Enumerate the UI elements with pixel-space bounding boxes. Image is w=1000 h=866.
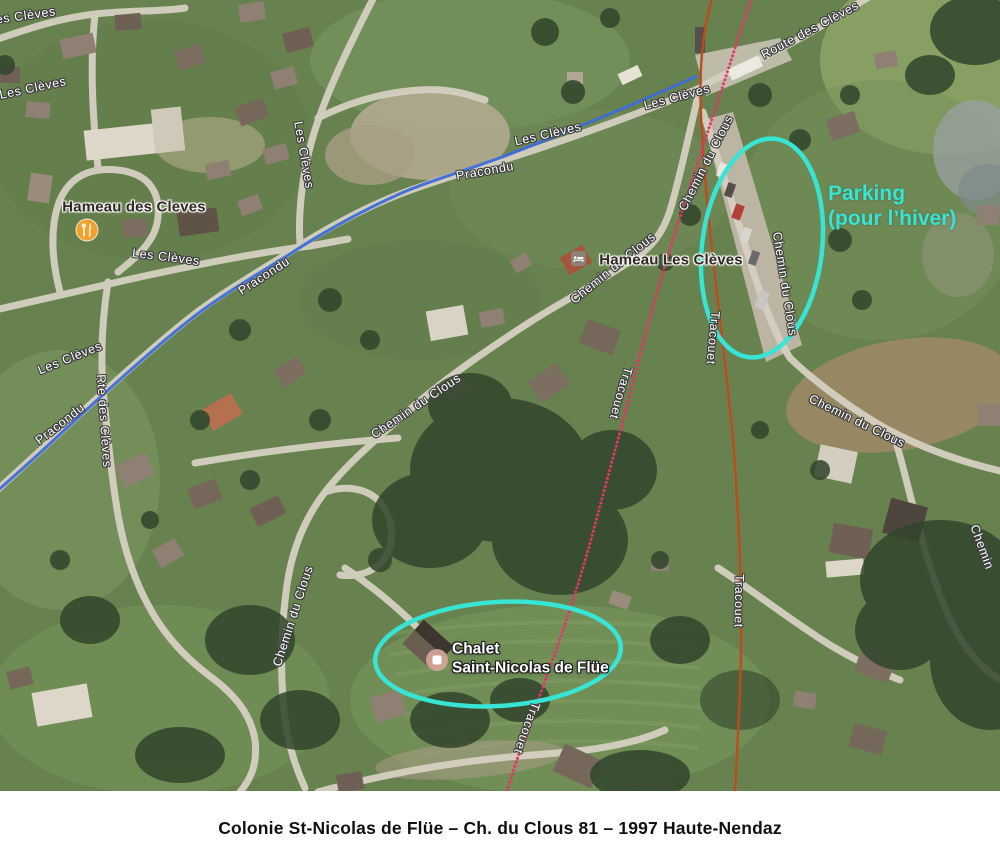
- satellite-terrain: [0, 0, 1000, 791]
- caption-bar: Colonie St-Nicolas de Flüe – Ch. du Clou…: [0, 791, 1000, 866]
- satellite-map: Les Clèves Les Clèves Les Clèves Les Clè…: [0, 0, 1000, 791]
- annotated-map-page: Les Clèves Les Clèves Les Clèves Les Clè…: [0, 0, 1000, 866]
- caption-text: Colonie St-Nicolas de Flüe – Ch. du Clou…: [218, 818, 782, 839]
